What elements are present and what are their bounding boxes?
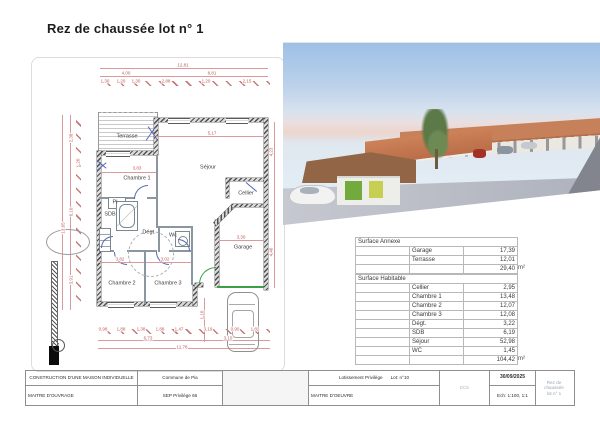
dimension-label: 4,00 — [121, 71, 131, 76]
dimension-label: 4,46 — [269, 247, 274, 257]
dimension-label: 1,88 — [155, 327, 165, 332]
window — [150, 302, 176, 308]
dimension-label: 5,17 — [207, 131, 217, 136]
wall-segment — [193, 285, 197, 306]
dimension-label: 3,02 — [160, 257, 170, 262]
drawing-sheet: { "page": { "title": "Rez de chaussée lo… — [0, 0, 600, 425]
commune: Commune de Pia — [138, 371, 223, 386]
room-label-garage: Garage — [234, 244, 252, 250]
dimension-label: 8,81 — [207, 71, 217, 76]
scale: Ech: 1:100, 1:1 — [490, 386, 536, 405]
dimension-line — [274, 122, 275, 288]
room-label-chambre-1: Chambre 1 — [123, 175, 150, 181]
white-car-window — [300, 187, 319, 194]
wall-segment — [226, 178, 264, 181]
dimension-label: 0,98 — [98, 327, 108, 332]
window — [106, 151, 130, 157]
dimension-label: 6,73 — [143, 336, 153, 341]
dimension-label: 0,90 — [230, 327, 240, 332]
window — [168, 118, 190, 124]
dimension-line — [62, 115, 63, 310]
dimension-line — [146, 262, 191, 263]
room-label-sdb: SDB — [104, 211, 115, 217]
table-row: Dégt.3,22 — [356, 320, 518, 329]
dimension-label: 1,82 — [250, 327, 260, 332]
dimension-line — [100, 68, 268, 69]
dimension-label: 1,20 — [201, 79, 211, 84]
room-label-s-jour: Séjour — [200, 164, 216, 170]
lotissement-cell: Lotissement Privilège Lot: n°10 — [309, 371, 440, 386]
dimension-label: 3,83 — [132, 166, 142, 171]
table-row: Chambre 212,07 — [356, 302, 518, 311]
dimension-label: 2,15 — [242, 79, 252, 84]
room-label-cellier: Cellier — [238, 190, 254, 196]
room-label-wc: Wc — [169, 232, 177, 238]
lot-number: Lot: n°10 — [391, 375, 409, 380]
window — [226, 118, 248, 124]
dimension-line — [100, 76, 268, 77]
dimension-line — [219, 240, 264, 241]
sheet-name-line1: Rez de chaussée — [538, 380, 570, 391]
dimension-label: 4,23 — [269, 147, 274, 157]
car-roof — [232, 310, 254, 338]
car-windshield — [229, 304, 255, 305]
table-row: Terrasse12,01 — [356, 256, 518, 265]
site-ellipse — [46, 229, 90, 255]
yellow-garage-door — [369, 181, 383, 197]
room-label-pl: Pl — [113, 199, 118, 205]
table-row: SDB6,19 — [356, 329, 518, 338]
dimension-label: 3,91 — [69, 275, 74, 285]
dimension-label: 3,10 — [223, 336, 233, 341]
bathtub-inner — [119, 204, 135, 228]
dimension-label: 3,30 — [236, 235, 246, 240]
north-arrow-icon: ↑ — [52, 339, 65, 352]
sheet-name: Rez de chaussée lot n° 1 — [536, 371, 572, 405]
garage-door — [217, 286, 264, 288]
dimension-label: 12,81 — [177, 63, 189, 68]
boundary-wall — [52, 262, 57, 346]
silver-parked-car — [521, 142, 537, 149]
car-rear-window — [229, 344, 255, 345]
dimension-line — [204, 298, 205, 342]
surface-table-header: Surface Annexe — [356, 238, 518, 247]
logo-area — [223, 371, 309, 405]
dimension-line — [100, 172, 156, 173]
project-title: CONSTRUCTION D'UNE MAISON INDIVIDUELLE — [26, 371, 138, 386]
green-garage-door — [345, 181, 362, 199]
wall-segment — [232, 204, 264, 207]
unit-label: m² — [517, 265, 525, 271]
dimension-ticks — [76, 118, 81, 308]
dimension-label: 13,65 — [61, 222, 66, 234]
dimension-label: 2,38 — [69, 133, 74, 143]
dimension-label: 1,47 — [174, 327, 184, 332]
table-row: Chambre 113,48 — [356, 293, 518, 302]
wall-segment — [264, 118, 268, 290]
dimension-label: 1,10 — [200, 310, 205, 320]
owner-label: MAITRE D'OUVRAGE — [26, 386, 138, 405]
room-label-chambre-2: Chambre 2 — [108, 280, 135, 286]
dimension-line — [99, 262, 144, 263]
room-label-d-gt-: Dégt. — [142, 229, 155, 235]
sheet-name-line2: lot n° 1 — [547, 391, 561, 396]
dimension-label: 1,20 — [116, 79, 126, 84]
dimension-label: 11,78 — [176, 345, 188, 350]
surface-table: Surface HabitableCellier2,95Chambre 113,… — [355, 274, 518, 365]
company: SEP Privilège 66 — [138, 386, 223, 405]
table-row: Chambre 312,08 — [356, 311, 518, 320]
dimension-label: 3,19 — [203, 327, 213, 332]
partition-wall — [147, 197, 158, 199]
window — [108, 302, 134, 308]
room-label-chambre-3: Chambre 3 — [154, 280, 181, 286]
table-row: Cellier2,95 — [356, 284, 518, 293]
table-total-row: 104,42m² — [356, 356, 518, 365]
phase: DCE — [440, 371, 490, 405]
dimension-label: 2,88 — [161, 79, 171, 84]
dimension-label: 1,88 — [116, 327, 126, 332]
partition-wall — [156, 155, 158, 228]
dimension-label: 1,30 — [131, 79, 141, 84]
north-arrow-glyph: ↑ — [57, 342, 61, 349]
table-row: Garage17,39 — [356, 247, 518, 256]
dimension-label: 1,38 — [136, 327, 146, 332]
unit-label: m² — [517, 356, 525, 362]
title-block: CONSTRUCTION D'UNE MAISON INDIVIDUELLE C… — [25, 370, 575, 406]
surface-table-header: Surface Habitable — [356, 275, 518, 284]
dimension-label: 6,10 — [69, 207, 74, 217]
table-row: Séjour52,98 — [356, 338, 518, 347]
room-label-terrasse: Terrasse — [116, 133, 137, 139]
lotissement: Lotissement Privilège — [339, 375, 383, 380]
dimension-label: 3,82 — [115, 257, 125, 262]
dimension-label: 1,20 — [76, 158, 81, 168]
table-total-row: 29,40m² — [356, 265, 518, 274]
partition-wall — [191, 226, 193, 285]
dimension-line — [156, 136, 264, 137]
tree-canopy — [427, 129, 449, 160]
red-parked-car — [473, 149, 486, 157]
dimension-label: 1,30 — [100, 79, 110, 84]
table-row: WC1,45 — [356, 347, 518, 356]
moe-label: MAITRE D'OEUVRE — [309, 386, 440, 405]
gray-parked-car — [497, 146, 513, 154]
date: 30/09/2025 — [490, 371, 536, 386]
tree-trunk — [435, 149, 438, 169]
surface-tables: Surface AnnexeGarage17,39Terrasse12,0129… — [355, 237, 518, 365]
partition-wall — [158, 226, 193, 228]
surface-table: Surface AnnexeGarage17,39Terrasse12,0129… — [355, 237, 518, 274]
wall-segment — [226, 178, 229, 198]
